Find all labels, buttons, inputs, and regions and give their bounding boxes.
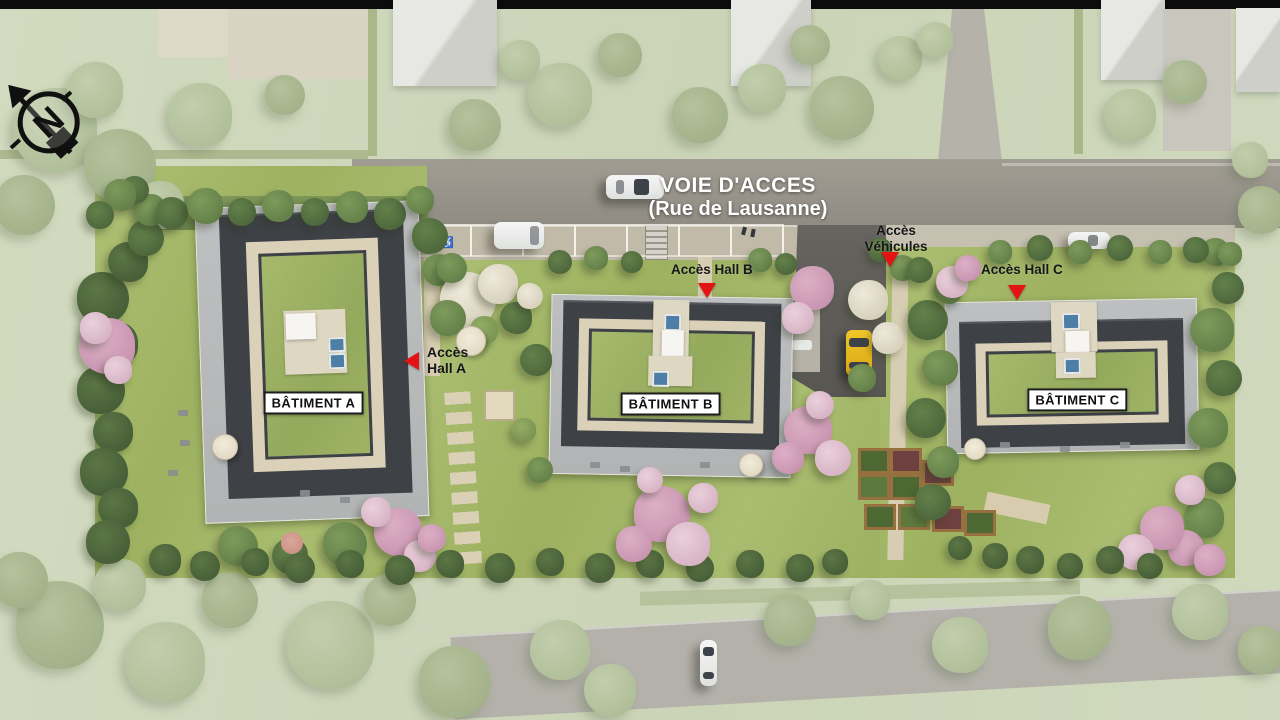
- access-hall-b-arrow: [698, 283, 716, 298]
- tree: [850, 580, 890, 620]
- tree: [374, 198, 406, 230]
- tree: [1016, 546, 1044, 574]
- building-a-label: BÂTIMENT A: [264, 392, 364, 415]
- tree: [1212, 272, 1244, 304]
- tree: [418, 524, 446, 552]
- tree: [86, 201, 114, 229]
- tree: [1232, 142, 1268, 178]
- tree: [1104, 89, 1156, 141]
- tree: [1218, 242, 1242, 266]
- sandbox: [484, 390, 515, 421]
- tree: [772, 442, 804, 474]
- tree: [419, 646, 491, 718]
- tree: [361, 497, 391, 527]
- access-hall-a-arrow: [404, 352, 419, 370]
- planter-box: [890, 448, 922, 474]
- tree: [786, 554, 814, 582]
- tree: [764, 594, 816, 646]
- tree: [621, 251, 643, 273]
- tree: [822, 549, 848, 575]
- tree: [906, 398, 946, 438]
- building-b: BÂTIMENT B: [548, 294, 793, 478]
- tree: [156, 197, 188, 229]
- hedge-strip: [368, 9, 377, 156]
- tree: [907, 257, 933, 283]
- tree: [520, 344, 552, 376]
- tree: [436, 550, 464, 578]
- planter-box: [858, 448, 890, 474]
- tree: [585, 553, 615, 583]
- parked-scooter: [792, 340, 812, 350]
- skylight: [1064, 358, 1081, 374]
- tree: [637, 467, 663, 493]
- neighbor-house-roof: [393, 0, 497, 86]
- terrace-furniture: [300, 490, 310, 496]
- terrace-furniture: [1120, 442, 1130, 448]
- tree: [1107, 235, 1133, 261]
- white-van: [494, 222, 544, 249]
- tree: [385, 555, 415, 585]
- tree: [104, 356, 132, 384]
- tree: [149, 544, 181, 576]
- tree: [872, 322, 904, 354]
- tree: [1206, 360, 1242, 396]
- parked-car: [700, 640, 717, 686]
- tree: [125, 622, 205, 702]
- skylight: [329, 353, 347, 370]
- skylight: [1062, 313, 1080, 330]
- tree: [94, 559, 146, 611]
- building-a: BÂTIMENT A: [195, 200, 430, 524]
- tree: [982, 543, 1008, 569]
- terrace-furniture: [1000, 442, 1010, 448]
- tree: [782, 302, 814, 334]
- parasol: [964, 438, 986, 460]
- tree: [1204, 462, 1236, 494]
- tree: [932, 617, 988, 673]
- tree: [262, 190, 294, 222]
- road-name: VOIE D'ACCES: [628, 174, 848, 198]
- tree: [1188, 408, 1228, 448]
- tree: [478, 264, 518, 304]
- parasol: [281, 532, 303, 554]
- tree: [1137, 553, 1163, 579]
- tree: [500, 40, 540, 80]
- tree: [437, 253, 467, 283]
- parking-line: [574, 226, 576, 256]
- skylight: [328, 337, 346, 353]
- tree: [955, 255, 981, 281]
- planter-box: [864, 504, 896, 530]
- parking-line: [470, 226, 472, 256]
- tree: [915, 484, 951, 520]
- parasol: [212, 434, 238, 460]
- tree: [810, 76, 874, 140]
- tree: [1175, 475, 1205, 505]
- parking-line: [730, 226, 732, 256]
- road-street-name: (Rue de Lausanne): [628, 198, 848, 221]
- neighbor-house-roof: [1236, 8, 1280, 92]
- terrace-furniture: [168, 470, 178, 476]
- road-label: VOIE D'ACCES (Rue de Lausanne): [628, 174, 848, 221]
- terrace-furniture: [590, 462, 600, 468]
- tree: [0, 175, 55, 235]
- tree: [1238, 186, 1280, 234]
- terrace-furniture: [178, 410, 188, 416]
- parking-line: [418, 224, 784, 226]
- tree: [86, 520, 130, 564]
- tree: [406, 186, 434, 214]
- tree: [598, 33, 642, 77]
- tree: [790, 25, 830, 65]
- parasol: [739, 453, 763, 477]
- tree: [527, 457, 553, 483]
- parking-line: [782, 226, 784, 256]
- tree: [1148, 240, 1172, 264]
- tree: [878, 36, 922, 80]
- site-plan: ♿ BÂTIMENT A BÂTIMENT: [0, 0, 1280, 720]
- terrace-furniture: [620, 466, 630, 472]
- tree: [927, 446, 959, 478]
- tree: [1096, 546, 1124, 574]
- tree: [1048, 596, 1112, 660]
- sidewalk-east: [882, 225, 1235, 247]
- tree: [336, 191, 368, 223]
- building-b-label: BÂTIMENT B: [621, 392, 721, 415]
- skylight: [652, 371, 669, 387]
- tree: [1163, 60, 1207, 104]
- building-c-label: BÂTIMENT C: [1027, 389, 1127, 412]
- access-hall-c-arrow: [1008, 285, 1026, 300]
- top-black-bar: [0, 0, 1280, 9]
- terrace-furniture: [1060, 446, 1070, 452]
- tree: [1172, 584, 1228, 640]
- tree: [584, 664, 636, 716]
- tree: [336, 550, 364, 578]
- tree: [848, 364, 876, 392]
- tree: [228, 198, 256, 226]
- neighbor-driveway: [228, 9, 368, 79]
- tree: [1190, 308, 1234, 352]
- tree: [265, 75, 305, 115]
- tree: [917, 22, 953, 58]
- tree: [584, 246, 608, 270]
- tree: [93, 412, 133, 452]
- tree: [449, 99, 501, 151]
- terrace-furniture: [180, 440, 190, 446]
- tree: [1057, 553, 1083, 579]
- tree: [688, 483, 718, 513]
- tree: [80, 312, 112, 344]
- tree: [202, 572, 258, 628]
- hedge-strip: [1074, 9, 1083, 154]
- access-hall-c-label: Accès Hall C: [981, 262, 1063, 278]
- tree: [528, 63, 592, 127]
- tree: [988, 240, 1012, 264]
- planter-box: [858, 474, 890, 500]
- tree: [168, 83, 232, 147]
- tree: [666, 522, 710, 566]
- tree: [512, 418, 536, 442]
- tree: [908, 300, 948, 340]
- terrace-furniture: [340, 497, 350, 503]
- tree: [948, 536, 972, 560]
- tree: [848, 280, 888, 320]
- tree: [286, 601, 374, 689]
- tree: [815, 440, 851, 476]
- access-hall-a-label: Accès Hall A: [427, 344, 468, 376]
- tree: [517, 283, 543, 309]
- tree: [775, 253, 797, 275]
- tree: [672, 87, 728, 143]
- building-c: BÂTIMENT C: [945, 298, 1200, 454]
- building-a-roof: [219, 209, 413, 499]
- neighbor-house-roof: [1101, 0, 1165, 80]
- tree: [736, 550, 764, 578]
- tree: [616, 526, 652, 562]
- compass-tick: [10, 138, 22, 149]
- tree: [187, 188, 223, 224]
- tree: [485, 553, 515, 583]
- parking-line: [678, 226, 680, 256]
- tree: [1027, 235, 1053, 261]
- tree: [285, 553, 315, 583]
- tree: [190, 551, 220, 581]
- tree: [1068, 240, 1092, 264]
- tree: [1194, 544, 1226, 576]
- tree: [530, 620, 590, 680]
- access-vehicles-label: Accès Véhicules: [860, 223, 932, 254]
- access-vehicles-arrow: [881, 252, 899, 267]
- tree: [536, 548, 564, 576]
- tree: [301, 198, 329, 226]
- skylight: [664, 314, 681, 331]
- tree: [922, 350, 958, 386]
- planter-box: [964, 510, 996, 536]
- tree: [241, 548, 269, 576]
- tree: [548, 250, 572, 274]
- tree: [738, 64, 786, 112]
- tree: [412, 218, 448, 254]
- tree: [806, 391, 834, 419]
- terrace-furniture: [700, 462, 710, 468]
- access-hall-b-label: Accès Hall B: [671, 262, 753, 278]
- tree: [1238, 626, 1280, 674]
- tree: [1183, 237, 1209, 263]
